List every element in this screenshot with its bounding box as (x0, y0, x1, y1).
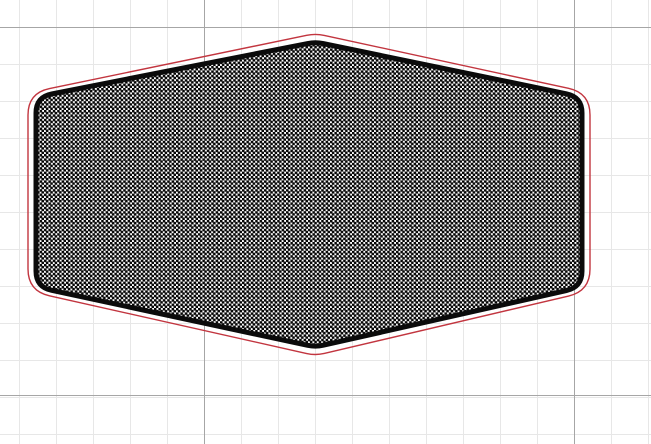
design-canvas[interactable] (0, 0, 651, 444)
drawing-layer (0, 0, 651, 444)
pocket-shape-filled-outline[interactable] (36, 43, 582, 346)
